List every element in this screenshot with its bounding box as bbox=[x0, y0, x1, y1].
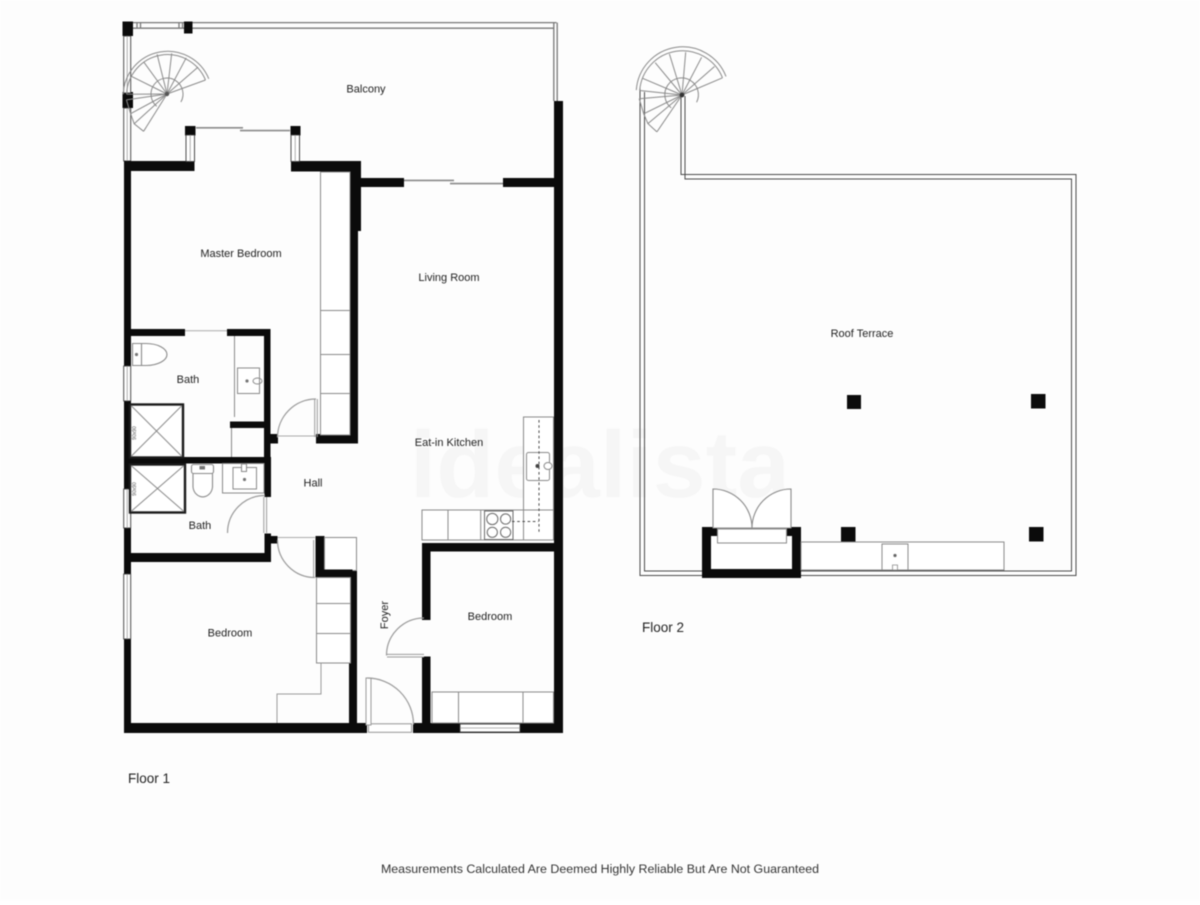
svg-text:Roof Terrace: Roof Terrace bbox=[831, 328, 894, 340]
svg-text:90x90: 90x90 bbox=[132, 482, 138, 496]
svg-text:Floor 1: Floor 1 bbox=[128, 771, 170, 786]
svg-text:Balcony: Balcony bbox=[346, 84, 386, 96]
svg-text:Measurements Calculated Are De: Measurements Calculated Are Deemed Highl… bbox=[381, 862, 819, 876]
svg-text:Bath: Bath bbox=[189, 520, 212, 532]
svg-text:Bath: Bath bbox=[177, 374, 200, 386]
svg-text:Bedroom: Bedroom bbox=[208, 628, 253, 640]
svg-text:Eat-in Kitchen: Eat-in Kitchen bbox=[415, 437, 483, 449]
svg-text:90x90: 90x90 bbox=[132, 426, 138, 440]
svg-text:Hall: Hall bbox=[304, 478, 323, 490]
svg-text:Living Room: Living Room bbox=[418, 272, 479, 284]
svg-text:Bedroom: Bedroom bbox=[468, 611, 513, 623]
svg-text:Master Bedroom: Master Bedroom bbox=[200, 248, 281, 260]
svg-text:Foyer: Foyer bbox=[379, 601, 391, 629]
svg-text:Floor 2: Floor 2 bbox=[642, 620, 684, 635]
